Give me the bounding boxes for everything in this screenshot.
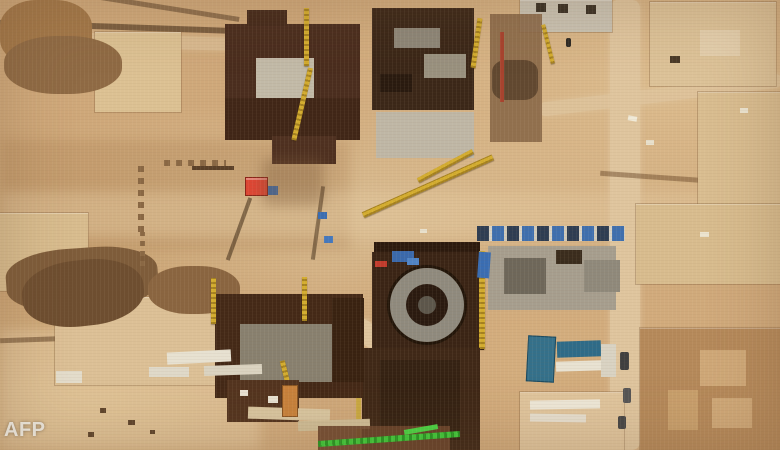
truck [618, 416, 626, 429]
orange-tower [282, 385, 298, 417]
vehicle-dot [740, 108, 748, 113]
pad-section-dark [556, 250, 582, 264]
building-interior-concrete [394, 28, 440, 48]
teal-roof-building [557, 340, 602, 358]
crane-mast [304, 8, 309, 66]
debris-dot [128, 420, 135, 425]
afp-watermark: AFP [4, 419, 46, 442]
construction-pad-east [698, 92, 780, 218]
construction-debris [492, 60, 538, 100]
pad-section-dark [504, 258, 546, 294]
dirt-mound [4, 36, 122, 94]
equipment-block [586, 5, 596, 14]
building-interior-concrete [424, 54, 466, 78]
white-trailer [149, 367, 189, 377]
dark-beam [192, 166, 234, 170]
white-trailer [56, 371, 82, 383]
pad-marking [700, 30, 740, 56]
debris-dot [88, 432, 94, 437]
blue-container [318, 212, 327, 219]
trailer-row [530, 399, 600, 409]
material-stacks [140, 232, 145, 266]
foundation-grid [376, 112, 474, 158]
construction-pad-east-b [636, 204, 780, 284]
laydown-area [262, 158, 324, 206]
crane-mast [211, 278, 216, 324]
building-annex [247, 10, 287, 26]
red-crane-mast [500, 32, 504, 102]
vehicle-dot [646, 140, 654, 145]
material-stacks [138, 160, 144, 232]
equipment-block [558, 4, 568, 13]
debris-dot [150, 430, 155, 434]
white-trailer [556, 360, 602, 372]
containment-center [418, 296, 436, 314]
equipment-block [536, 3, 546, 12]
blue-container [324, 236, 333, 243]
container-row [477, 226, 625, 241]
debris-dot [100, 408, 106, 413]
building-east-wing [332, 298, 364, 382]
figure-dot [566, 38, 571, 47]
blue-equipment [477, 252, 491, 279]
pad-section-grid [584, 260, 620, 292]
white-trailer [601, 344, 616, 377]
red-equipment [375, 261, 387, 267]
truck [623, 388, 631, 403]
vehicle-dot [420, 229, 427, 233]
trailer-row [530, 414, 586, 423]
equipment-white [240, 390, 248, 396]
satellite-photo: AFP [0, 0, 780, 450]
equipment-white [268, 396, 278, 403]
teal-roof-building [526, 335, 556, 382]
excavation-mark [712, 398, 752, 428]
crane-mast [302, 277, 307, 321]
blue-crane-equipment [407, 258, 419, 265]
white-trailer [204, 364, 262, 376]
building-interior-dark [380, 74, 412, 92]
excavation-mark [668, 390, 698, 430]
vehicle-dot [700, 232, 709, 237]
truck [620, 352, 629, 370]
dark-vehicle [670, 56, 680, 63]
excavation-pad-southeast [640, 328, 780, 450]
excavation-mark [700, 350, 746, 386]
